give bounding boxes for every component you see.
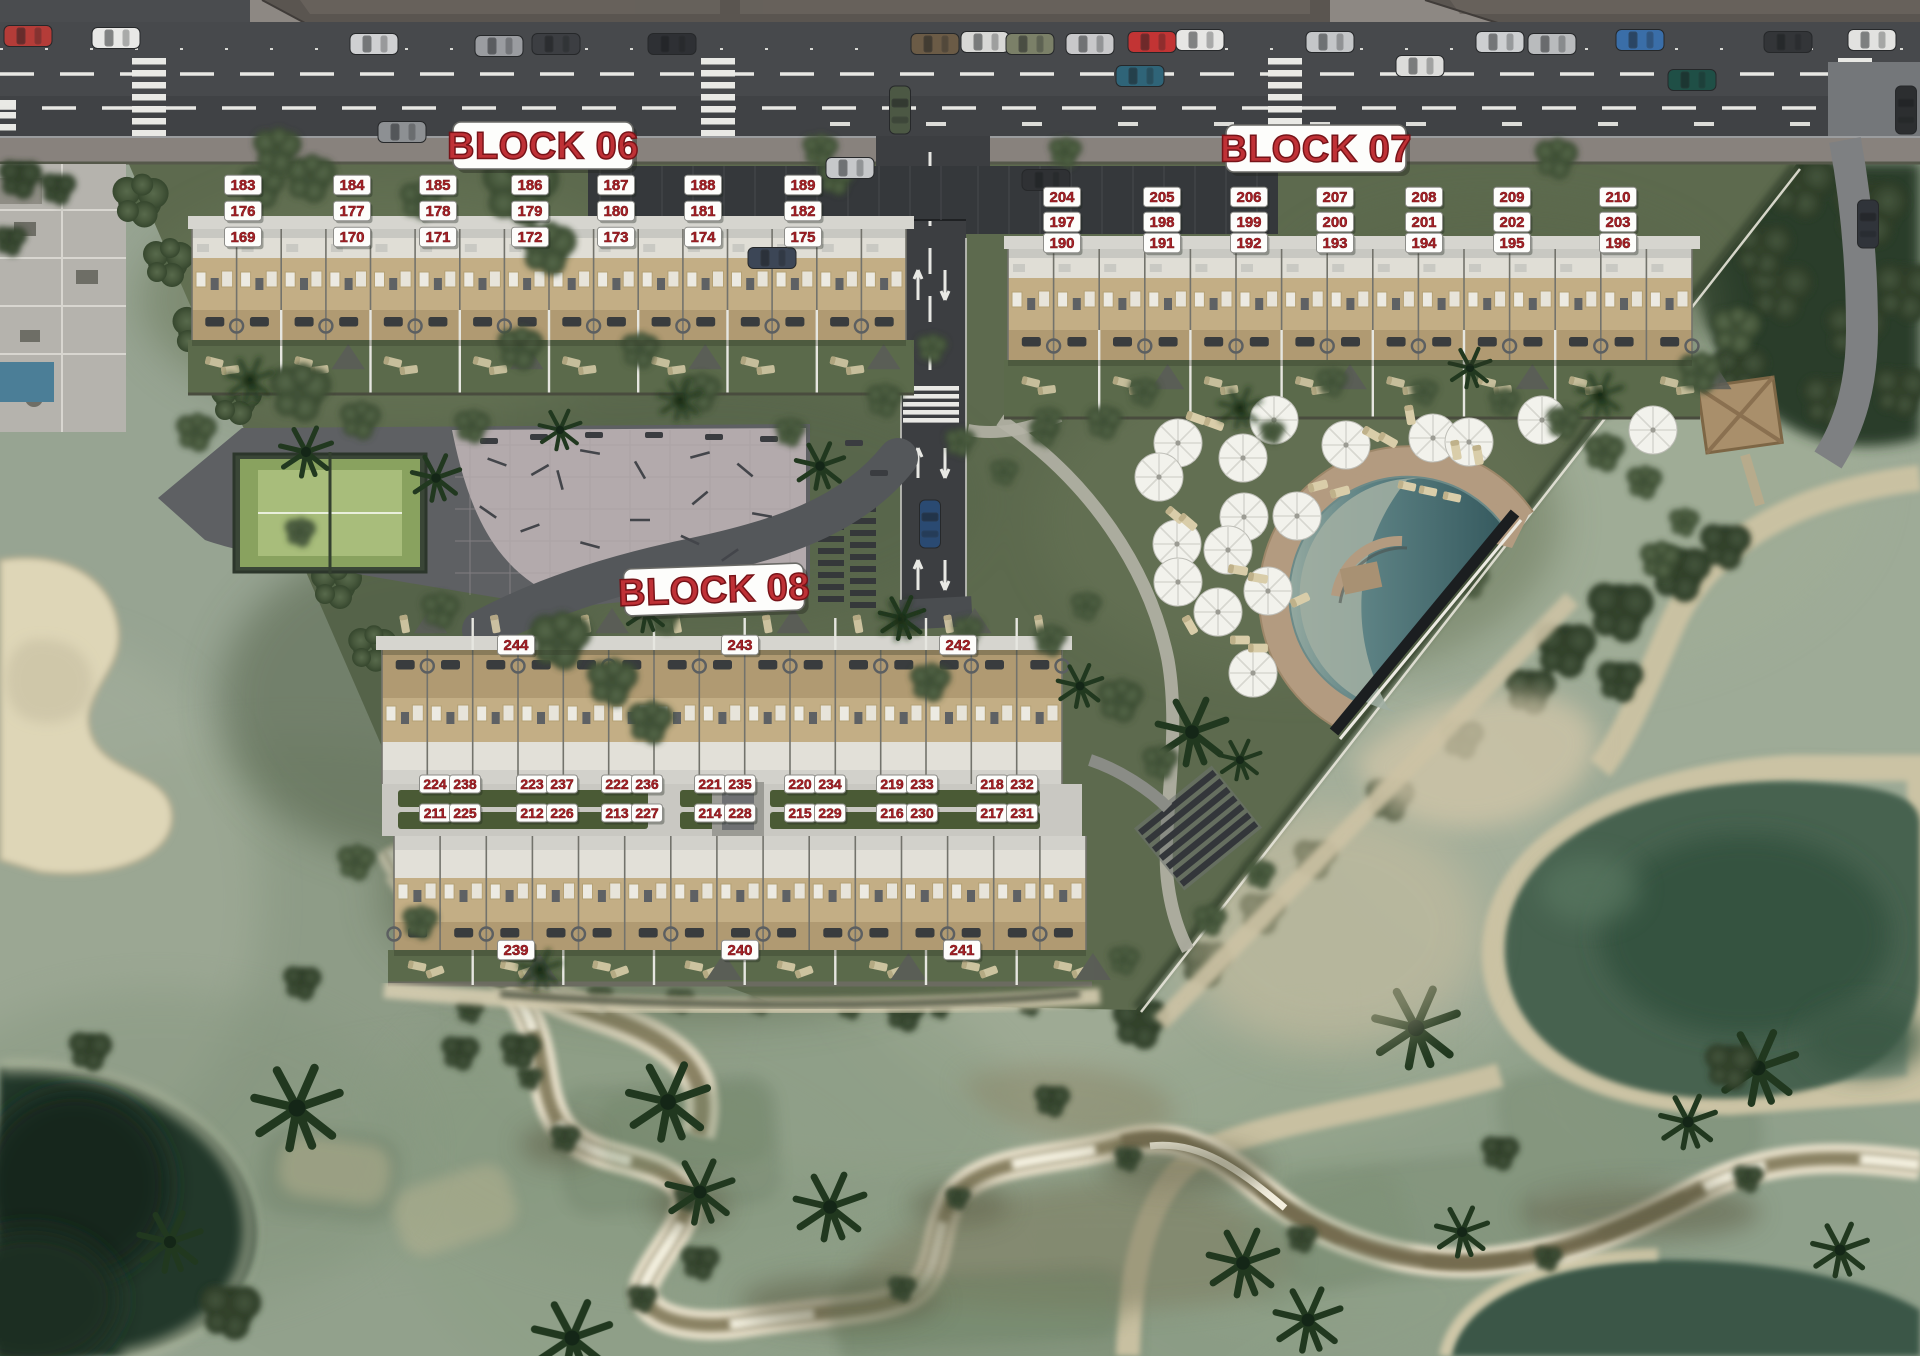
svg-text:178: 178 [425, 203, 450, 220]
svg-text:180: 180 [603, 203, 628, 220]
svg-text:198: 198 [1149, 214, 1174, 231]
svg-text:244: 244 [503, 637, 529, 654]
svg-text:233: 233 [910, 776, 934, 792]
svg-text:237: 237 [550, 776, 574, 792]
svg-text:231: 231 [1010, 805, 1034, 821]
svg-text:189: 189 [790, 177, 815, 194]
svg-text:241: 241 [949, 942, 974, 959]
svg-text:223: 223 [520, 776, 544, 792]
svg-text:169: 169 [230, 229, 255, 246]
svg-text:171: 171 [425, 229, 450, 246]
svg-text:177: 177 [339, 203, 364, 220]
svg-text:220: 220 [788, 776, 812, 792]
svg-text:209: 209 [1499, 189, 1524, 206]
svg-text:216: 216 [880, 805, 904, 821]
svg-text:234: 234 [818, 776, 842, 792]
svg-text:215: 215 [788, 805, 812, 821]
svg-text:207: 207 [1322, 189, 1347, 206]
svg-text:204: 204 [1049, 189, 1075, 206]
svg-text:214: 214 [698, 805, 722, 821]
svg-text:BLOCK 06: BLOCK 06 [447, 126, 639, 168]
svg-text:238: 238 [453, 776, 477, 792]
svg-text:181: 181 [690, 203, 715, 220]
svg-text:240: 240 [727, 942, 752, 959]
svg-text:184: 184 [339, 177, 365, 194]
svg-text:210: 210 [1605, 189, 1630, 206]
svg-text:182: 182 [790, 203, 815, 220]
svg-text:174: 174 [690, 229, 716, 246]
svg-text:191: 191 [1149, 235, 1174, 252]
svg-text:203: 203 [1605, 214, 1630, 231]
svg-text:170: 170 [339, 229, 364, 246]
svg-text:186: 186 [517, 177, 542, 194]
svg-text:BLOCK 07: BLOCK 07 [1220, 129, 1412, 171]
svg-text:236: 236 [635, 776, 659, 792]
svg-text:BLOCK 08: BLOCK 08 [617, 566, 810, 615]
svg-text:242: 242 [945, 637, 970, 654]
svg-text:232: 232 [1010, 776, 1034, 792]
svg-text:190: 190 [1049, 235, 1074, 252]
svg-text:206: 206 [1236, 189, 1261, 206]
svg-text:185: 185 [425, 177, 450, 194]
svg-text:212: 212 [520, 805, 544, 821]
svg-text:243: 243 [727, 637, 752, 654]
svg-text:201: 201 [1411, 214, 1436, 231]
svg-text:211: 211 [424, 805, 447, 821]
svg-text:195: 195 [1499, 235, 1524, 252]
svg-text:197: 197 [1049, 214, 1074, 231]
svg-text:224: 224 [423, 776, 447, 792]
svg-text:172: 172 [517, 229, 542, 246]
svg-text:200: 200 [1322, 214, 1347, 231]
svg-text:196: 196 [1605, 235, 1630, 252]
svg-text:221: 221 [698, 776, 722, 792]
svg-text:213: 213 [605, 805, 629, 821]
svg-text:205: 205 [1149, 189, 1174, 206]
svg-text:194: 194 [1411, 235, 1437, 252]
svg-text:175: 175 [790, 229, 815, 246]
svg-text:199: 199 [1236, 214, 1261, 231]
svg-text:217: 217 [980, 805, 1004, 821]
svg-text:218: 218 [980, 776, 1004, 792]
svg-text:229: 229 [818, 805, 842, 821]
svg-text:227: 227 [635, 805, 659, 821]
svg-text:192: 192 [1236, 235, 1261, 252]
svg-text:176: 176 [230, 203, 255, 220]
svg-text:187: 187 [603, 177, 628, 194]
svg-text:225: 225 [453, 805, 477, 821]
svg-text:219: 219 [880, 776, 904, 792]
svg-text:173: 173 [603, 229, 628, 246]
svg-text:188: 188 [690, 177, 715, 194]
svg-text:193: 193 [1322, 235, 1347, 252]
svg-text:239: 239 [503, 942, 528, 959]
svg-text:202: 202 [1499, 214, 1524, 231]
svg-text:222: 222 [605, 776, 629, 792]
svg-text:183: 183 [230, 177, 255, 194]
svg-text:179: 179 [517, 203, 542, 220]
svg-text:235: 235 [728, 776, 752, 792]
svg-text:230: 230 [910, 805, 934, 821]
svg-text:208: 208 [1411, 189, 1436, 206]
svg-text:228: 228 [728, 805, 752, 821]
svg-text:226: 226 [550, 805, 574, 821]
